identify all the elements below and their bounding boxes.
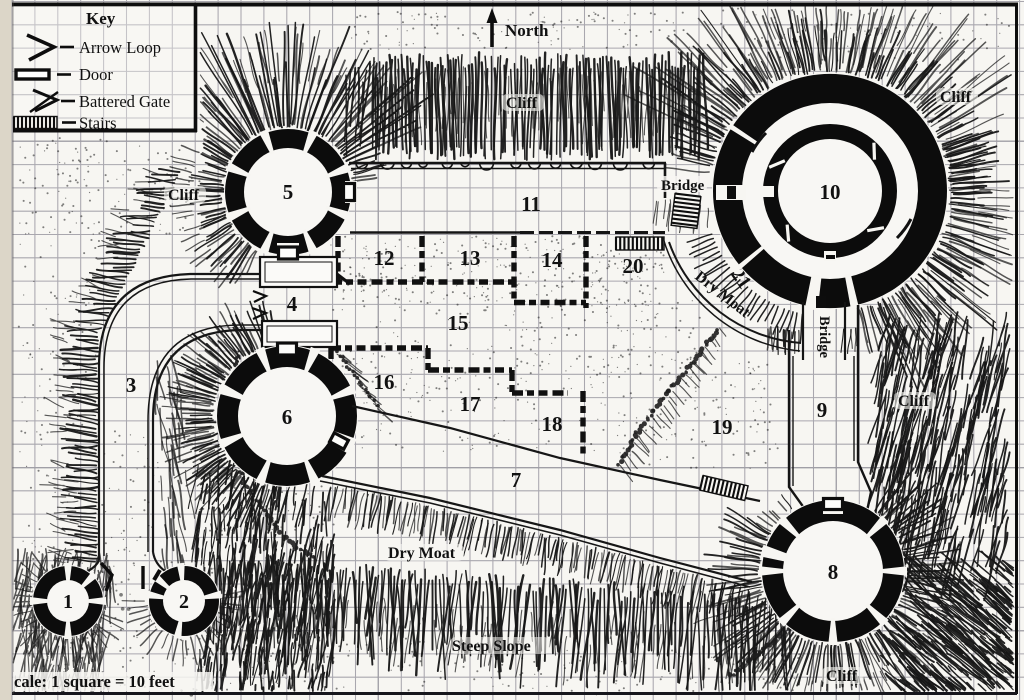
svg-text:6: 6 (282, 405, 293, 429)
svg-text:Door: Door (79, 65, 113, 84)
svg-text:Steep Slope: Steep Slope (452, 638, 531, 655)
svg-text:Cliff: Cliff (898, 393, 930, 410)
svg-text:10: 10 (820, 180, 841, 204)
svg-text:Key: Key (86, 9, 116, 28)
svg-text:Dry Moat: Dry Moat (388, 545, 456, 562)
svg-text:4: 4 (287, 292, 298, 316)
svg-text:18: 18 (542, 412, 563, 436)
svg-text:Stairs: Stairs (79, 114, 117, 133)
svg-text:3: 3 (126, 373, 137, 397)
svg-text:Bridge: Bridge (816, 316, 832, 358)
svg-text:11: 11 (521, 192, 541, 216)
svg-text:14: 14 (542, 248, 564, 272)
svg-text:Cliff: Cliff (168, 187, 200, 204)
svg-text:North: North (505, 21, 549, 40)
svg-text:1: 1 (63, 591, 73, 613)
svg-text:Bridge: Bridge (661, 178, 705, 194)
svg-text:Cliff: Cliff (506, 95, 538, 112)
svg-text:9: 9 (817, 398, 828, 422)
svg-text:8: 8 (828, 560, 839, 584)
svg-text:Cliff: Cliff (826, 668, 858, 685)
svg-text:12: 12 (374, 246, 395, 270)
svg-text:cale: 1 square = 10 feet: cale: 1 square = 10 feet (14, 672, 175, 691)
svg-text:5: 5 (283, 180, 294, 204)
svg-text:7: 7 (511, 468, 522, 492)
svg-text:Cliff: Cliff (940, 89, 972, 106)
svg-text:13: 13 (460, 246, 481, 270)
svg-text:17: 17 (460, 392, 481, 416)
svg-text:2: 2 (179, 591, 189, 613)
svg-text:16: 16 (374, 370, 395, 394)
svg-text:Battered Gate: Battered Gate (79, 92, 170, 111)
svg-text:15: 15 (448, 311, 469, 335)
svg-text:20: 20 (623, 254, 644, 278)
svg-text:Arrow Loop: Arrow Loop (79, 38, 161, 57)
svg-text:19: 19 (712, 415, 733, 439)
